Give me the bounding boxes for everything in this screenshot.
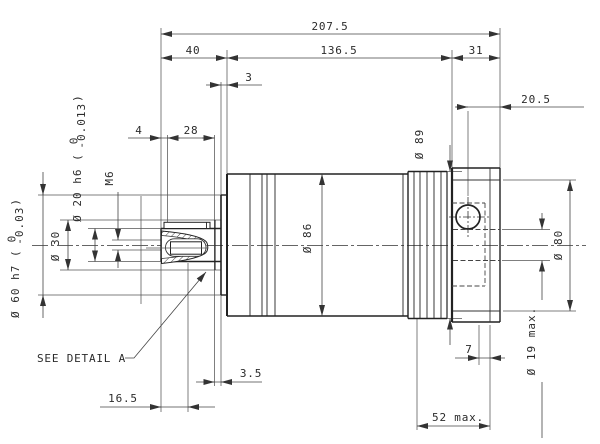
dim-clamp-depth: 52 max. — [432, 411, 484, 424]
technical-drawing-page: 207.5 40 136.5 31 3 20.5 4 28 3.5 16.5 7… — [0, 0, 600, 444]
dim-pilot-dia: Ø 60 h7 (0-0.03) — [6, 198, 27, 318]
dim-collar-step: 3.5 — [240, 367, 262, 380]
motor-flange — [452, 168, 500, 322]
dim-shaft-section: 40 — [186, 44, 201, 57]
dim-pilot-step: 3 — [245, 71, 252, 84]
dim-collar-dia: Ø 30 — [49, 231, 62, 262]
dim-thread: M6 — [103, 170, 116, 185]
keyway-slot-top — [164, 222, 210, 228]
dim-screw-offset: 20.5 — [521, 93, 551, 106]
dim-adapter-section: 31 — [469, 44, 484, 57]
dim-total-length: 207.5 — [311, 20, 348, 33]
dim-keyway-pos: 16.5 — [108, 392, 138, 405]
dim-slot-depth: 7 — [465, 343, 472, 356]
dim-housing-dia: Ø 86 — [301, 223, 314, 254]
dimension-labels: 207.5 40 136.5 31 3 20.5 4 28 3.5 16.5 7… — [6, 20, 566, 424]
dim-flange-dia: Ø 80 — [552, 230, 565, 261]
gearbox-housing — [227, 174, 408, 316]
detail-a-leader — [125, 272, 206, 358]
dim-key-length: 28 — [184, 124, 199, 137]
gearbox-drawing: 207.5 40 136.5 31 3 20.5 4 28 3.5 16.5 7… — [0, 0, 600, 444]
hidden-motor-bore — [453, 230, 500, 261]
dim-bore-dia: Ø 19 max. — [525, 307, 538, 376]
dim-shaft-dia: Ø 20 h6 (0-0.013) — [68, 94, 89, 222]
see-detail-note: SEE DETAIL A — [37, 352, 126, 365]
dim-key-start: 4 — [135, 124, 142, 137]
cooling-ribs — [408, 172, 447, 319]
dim-housing-section: 136.5 — [320, 44, 357, 57]
dim-ring-dia: Ø 89 — [413, 129, 426, 160]
mounting-boss — [215, 195, 227, 295]
